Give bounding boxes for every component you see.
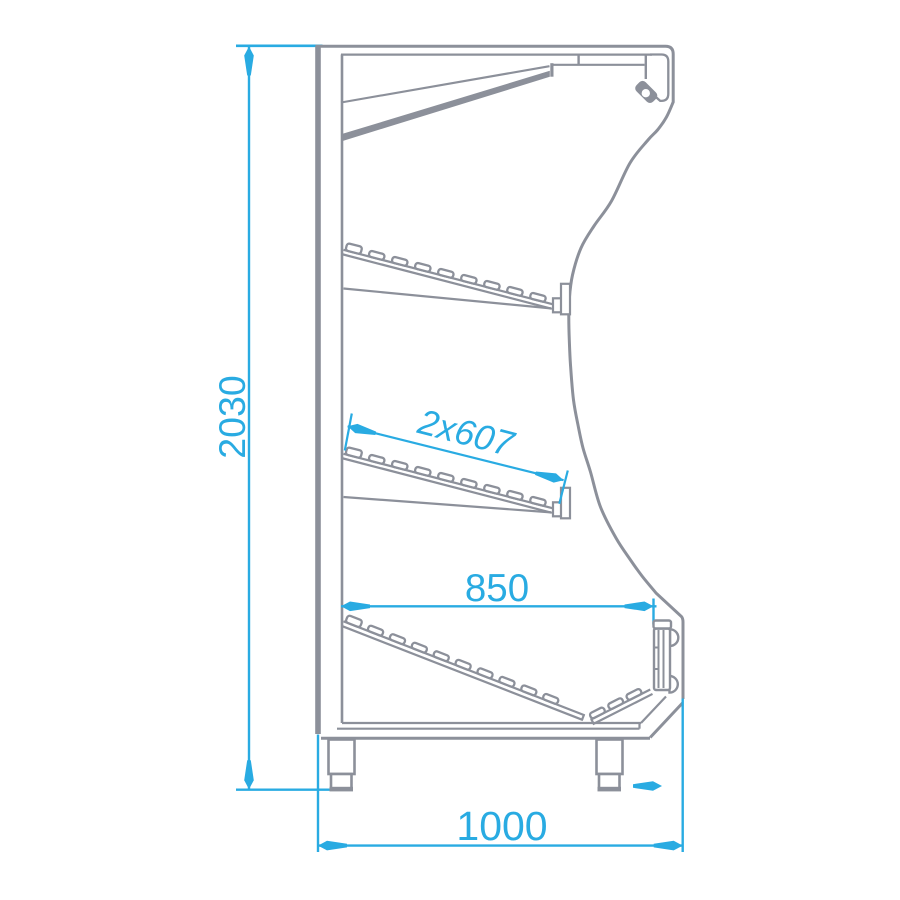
svg-text:850: 850 bbox=[465, 567, 529, 610]
svg-text:2030: 2030 bbox=[211, 375, 253, 458]
svg-text:1000: 1000 bbox=[456, 803, 547, 849]
